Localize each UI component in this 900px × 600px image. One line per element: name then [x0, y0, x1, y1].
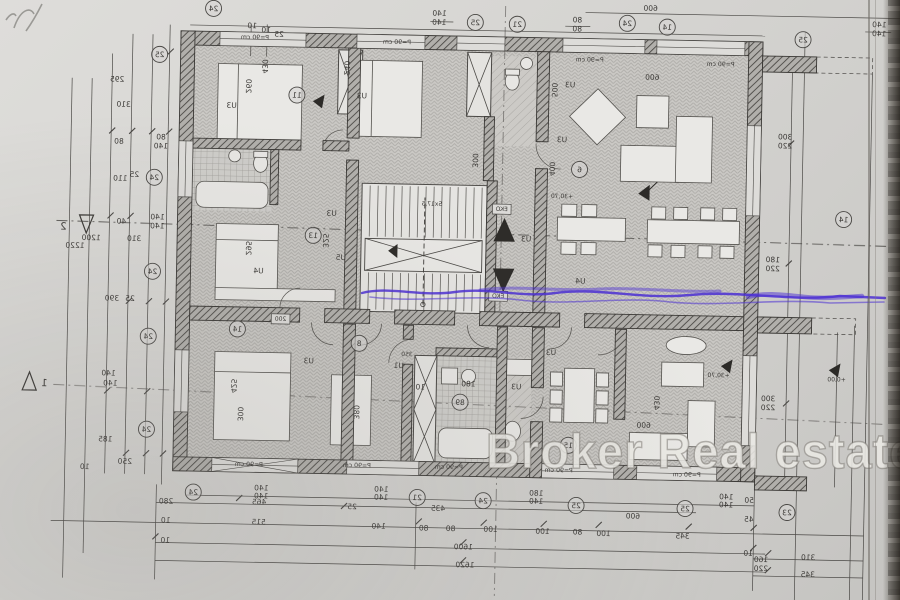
axis-marker-label: 25	[155, 50, 165, 59]
dim-label: 220	[765, 264, 780, 273]
dim-label: P=90 cm	[383, 39, 411, 47]
axis-marker-label: 14	[662, 23, 672, 32]
axis-marker-label: 21	[412, 493, 422, 502]
axis-marker-label: 25	[571, 501, 581, 510]
dim-label: 45	[744, 515, 754, 524]
dim-label: U3	[303, 356, 314, 365]
dim-label: 1620	[455, 560, 474, 569]
dim-label: U3	[546, 348, 557, 357]
dim-label: 345	[675, 531, 690, 540]
axis-marker-label: 24	[147, 267, 157, 276]
dim-label: 5x17,5	[421, 200, 442, 207]
dim-label: 380	[352, 405, 361, 420]
dim-label: 250	[117, 457, 132, 466]
dim-label: U4	[253, 266, 264, 275]
scan-edge-noise	[888, 0, 900, 600]
paper-fold-line-2	[875, 0, 876, 600]
dim-label: 310	[801, 553, 816, 562]
axis-marker-label: 21	[512, 20, 522, 29]
dim-label: 140	[101, 368, 116, 377]
dim-label: 345	[800, 570, 815, 579]
dim-label: 260	[244, 79, 253, 94]
scanned-floor-plan: 2953108080140110251401404031012001220390…	[0, 0, 900, 600]
dim-label: P=90 cm	[575, 56, 603, 64]
dim-label: U3	[226, 101, 237, 110]
axis-marker-label: 13	[308, 231, 318, 240]
axis-marker-label: 25	[470, 18, 480, 27]
dim-label: 600	[645, 73, 660, 82]
axis-marker-label: 23	[782, 508, 792, 517]
axis-marker-label: 25	[798, 35, 808, 44]
watermark: Broker Real estate	[486, 424, 889, 480]
dim-label: 2	[60, 222, 67, 233]
dim-label: P=90 cm	[706, 61, 734, 69]
dim-label: 220	[761, 403, 776, 412]
axis-marker-label: 24	[478, 496, 488, 505]
dim-label: 10	[415, 382, 425, 391]
dim-label: 80	[446, 524, 456, 533]
dim-label: 10	[247, 21, 257, 30]
dim-label: 300	[761, 394, 776, 403]
axis-marker-label: 14	[232, 325, 242, 334]
dim-label: 80	[572, 527, 582, 536]
dim-label: 500	[550, 83, 559, 98]
tilted-plan-group: 2953108080140110251401404031012001220390…	[18, 0, 900, 600]
dim-label: 160	[754, 555, 769, 564]
axis-marker-label: 89	[455, 398, 465, 407]
dim-label: 600	[643, 4, 658, 13]
axis-marker-label: 24	[141, 425, 151, 434]
dim-label: 295	[244, 241, 253, 256]
dim-label: 100	[596, 529, 611, 538]
axis-marker-label: 24	[149, 173, 159, 182]
dim-label: 515	[251, 517, 266, 526]
dim-label: +30,70	[707, 372, 730, 379]
dim-label: 185	[98, 434, 113, 443]
dim-label: 240	[342, 61, 351, 76]
dim-label: 325	[321, 233, 330, 248]
dim-label: 1600	[453, 542, 472, 551]
dim-label: 25	[129, 170, 139, 179]
dim-label: 465	[252, 497, 267, 506]
axis-marker-label: 6	[577, 165, 582, 174]
dim-label: 295	[110, 74, 125, 83]
axis-marker-label: 11	[292, 91, 302, 100]
axis-marker-label: 24	[188, 488, 198, 497]
axis-marker-label: 8	[356, 339, 361, 348]
dim-label: 220	[753, 564, 768, 573]
dim-label: 140	[153, 141, 168, 150]
dim-label: +0,00	[827, 376, 846, 383]
dim-label: P=90 cm	[343, 462, 371, 470]
dim-label: U1	[393, 361, 404, 370]
dim-label: 100	[535, 527, 550, 536]
dim-label: U3	[565, 80, 576, 89]
dim-label: EKO	[495, 206, 508, 213]
dim-label: 80	[114, 137, 124, 146]
dim-label: 40	[116, 217, 126, 226]
dim-label: 140	[150, 212, 165, 221]
dim-label: 140	[103, 378, 118, 387]
dim-label: 1	[41, 378, 48, 389]
pen-stroke-4	[748, 294, 862, 298]
dim-label: 140	[150, 221, 165, 230]
dim-label: 600	[625, 511, 640, 520]
dim-label: 50	[744, 496, 754, 505]
dim-label: 10	[261, 25, 271, 34]
dim-label: 25	[347, 502, 357, 511]
dim-label: 300	[778, 132, 793, 141]
dim-label: 220	[778, 141, 793, 150]
dim-label: 200	[275, 316, 287, 323]
dim-label: P=90 cm	[241, 34, 269, 42]
dim-label: 10	[743, 549, 753, 558]
dim-label: U3	[326, 209, 337, 218]
dim-label: U3	[521, 234, 532, 243]
dim-label: 25	[125, 294, 135, 303]
dim-label: 140	[432, 18, 447, 27]
dim-label: U5	[335, 253, 346, 262]
axis-marker-label: 24	[208, 4, 218, 13]
paper-fold-line	[868, 0, 870, 600]
dim-label: P=90 cm	[435, 464, 463, 472]
dim-label: 10	[80, 462, 90, 471]
dim-label: 430	[260, 59, 269, 74]
dim-label: +30,70	[551, 193, 574, 200]
dim-label: 425	[229, 378, 238, 393]
dim-label: 1220	[65, 241, 84, 250]
dim-label: U3	[557, 135, 568, 144]
dim-label: U3	[511, 382, 522, 391]
dim-label: 300	[236, 407, 245, 422]
dim-label: 10	[160, 535, 170, 544]
dim-label: 300	[471, 153, 480, 168]
dim-label: 140	[432, 9, 447, 18]
dim-label: 10	[161, 515, 171, 524]
dim-label: 100	[483, 525, 498, 534]
dim-label: U4	[575, 276, 586, 285]
dim-label: 110	[113, 174, 128, 183]
dim-label: 310	[116, 100, 131, 109]
dim-label: 140	[719, 500, 734, 509]
dim-label: 310	[127, 234, 142, 243]
dim-label: 435	[431, 504, 446, 513]
dim-label: 80	[572, 24, 582, 33]
floor-plan-drawing: 2953108080140110251401404031012001220390…	[0, 0, 900, 600]
axis-marker-label: 25	[680, 504, 690, 513]
dim-label: 25	[274, 30, 284, 39]
dim-label: U3	[356, 91, 367, 100]
dim-label: 430	[652, 396, 661, 411]
dim-label: 180	[461, 379, 476, 388]
dim-label: 140	[371, 522, 386, 531]
axis-marker-label: 24	[143, 332, 153, 341]
dim-label: 80	[156, 132, 166, 141]
axis-marker-label: 24	[622, 19, 632, 28]
dim-label: 180	[765, 255, 780, 264]
dim-label: 140	[374, 493, 389, 502]
dim-label: 140	[529, 497, 544, 506]
dim-label: P=90 cm	[235, 461, 263, 469]
dim-label: 80	[572, 15, 582, 24]
dim-label: 280	[159, 496, 174, 505]
axis-marker-label: 14	[839, 215, 849, 224]
dim-label: 80	[419, 523, 429, 532]
pencil-scribble	[6, 4, 42, 31]
dim-label: 400	[547, 161, 556, 176]
dim-label: 390	[105, 293, 120, 302]
dim-label: 350	[401, 351, 413, 358]
